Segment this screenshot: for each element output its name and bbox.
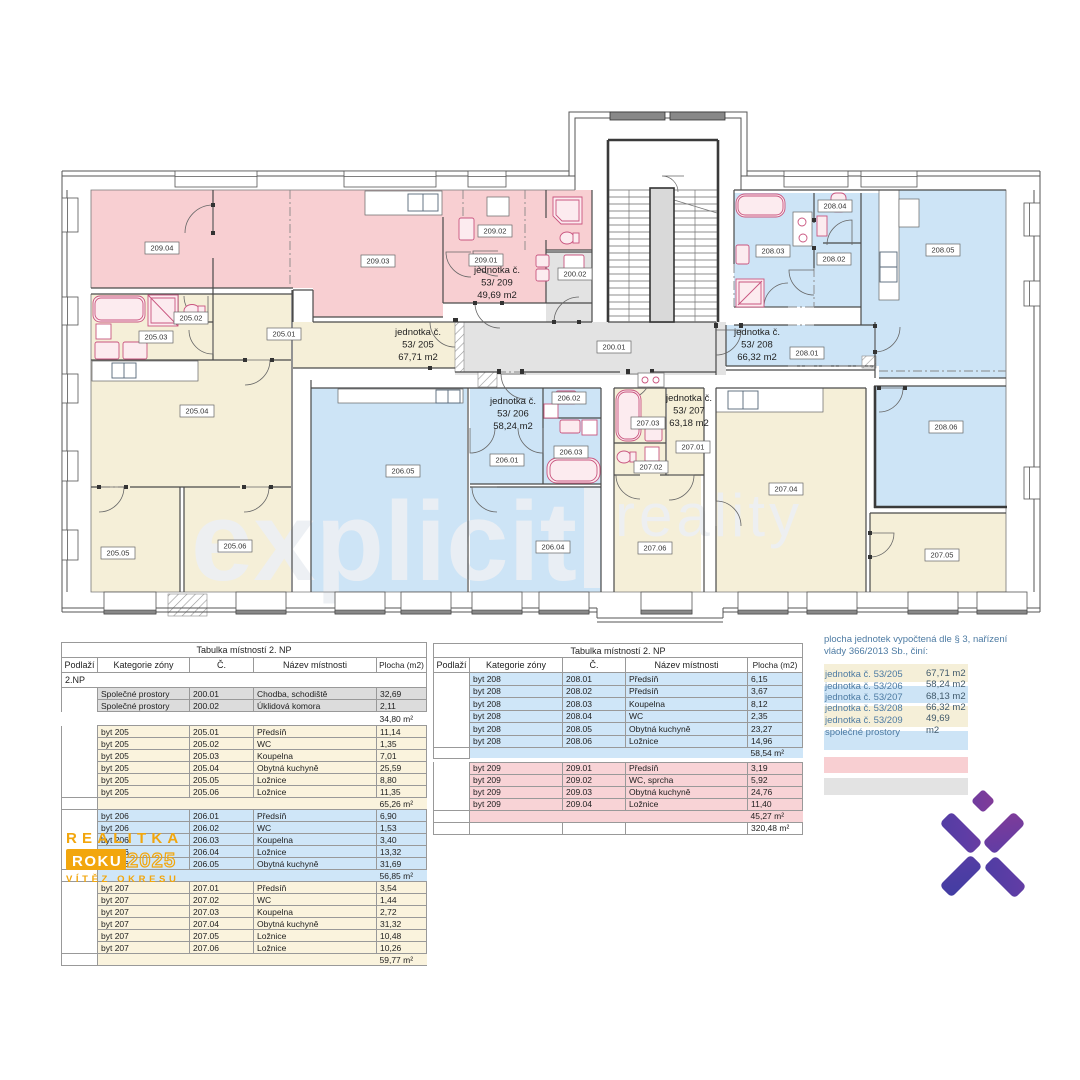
svg-text:206.03: 206.03 [560,448,583,457]
svg-text:207.03: 207.03 [637,419,660,428]
svg-text:205.04: 205.04 [186,407,209,416]
svg-text:207.06: 207.06 [644,544,667,553]
svg-text:208.03: 208.03 [762,247,785,256]
svg-text:206.05: 206.05 [392,467,415,476]
svg-text:2025: 2025 [127,850,176,872]
svg-text:REALITKA: REALITKA [66,830,183,847]
svg-text:205.05: 205.05 [107,549,130,558]
svg-text:200.01: 200.01 [603,343,626,352]
svg-text:208.05: 208.05 [932,246,955,255]
svg-text:209.04: 209.04 [151,244,174,253]
svg-text:207.01: 207.01 [682,443,705,452]
svg-text:207.05: 207.05 [931,551,954,560]
svg-text:205.02: 205.02 [180,314,203,323]
svg-text:209.03: 209.03 [367,257,390,266]
svg-text:209.01: 209.01 [475,256,498,265]
svg-text:205.03: 205.03 [145,333,168,342]
svg-text:208.01: 208.01 [796,349,819,358]
svg-text:205.01: 205.01 [273,330,296,339]
svg-text:208.02: 208.02 [823,255,846,264]
svg-text:208.04: 208.04 [824,202,847,211]
svg-text:VÍTĚZ OKRESU: VÍTĚZ OKRESU [66,873,179,885]
svg-text:206.04: 206.04 [542,543,565,552]
svg-text:ROKU: ROKU [72,853,122,870]
svg-text:206.01: 206.01 [496,456,519,465]
svg-text:205.06: 205.06 [224,542,247,551]
svg-text:200.02: 200.02 [564,270,587,279]
svg-text:208.06: 208.06 [935,423,958,432]
svg-text:209.02: 209.02 [484,227,507,236]
svg-text:207.04: 207.04 [775,485,798,494]
svg-text:207.02: 207.02 [640,463,663,472]
svg-text:206.02: 206.02 [558,394,581,403]
